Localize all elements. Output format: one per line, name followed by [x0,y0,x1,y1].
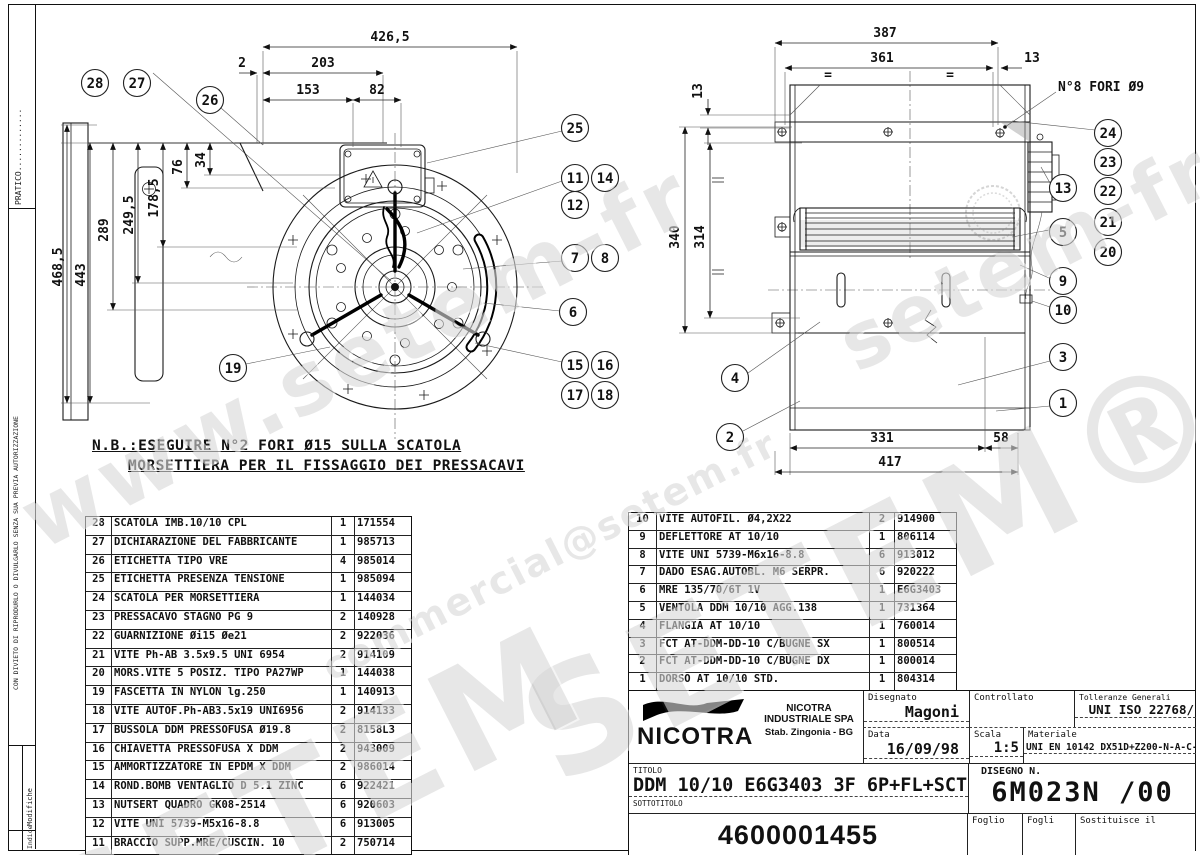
svg-text:18: 18 [597,388,614,404]
balloon: 8 [592,245,619,272]
bom-pos: 28 [86,517,111,535]
bom-qty: 6 [869,549,894,566]
bom-pos: 21 [86,649,111,667]
bom-desc: CHIAVETTA PRESSOFUSA X DDM [111,743,331,761]
dim-label: 153 [296,83,319,98]
bom-row: 22GUARNIZIONE Øi15 Øe212922036 [86,629,411,648]
bom-desc: VENTOLA DDM 10/10 AGG.138 [656,602,869,619]
break-line [925,310,937,343]
scala-value: 1:5 [970,740,1023,757]
svg-text:28: 28 [87,76,104,92]
dim-label: 76 [171,159,186,175]
bom-code: 140913 [354,686,411,704]
bom-desc: DADO ESAG.AUTOBL. M6 SERPR. [656,566,869,583]
balloon: 23 [1095,149,1122,176]
controllato-cell: Controllato [969,691,1074,727]
dimensions-left: 468,5 443 289 249,5 178,5 76 34 [51,125,340,403]
bom-code: 804314 [894,673,956,690]
bom-row: 21VITE Ph-AB 3.5x9.5 UNI 69542914109 [86,648,411,667]
balloon: 3 [1050,344,1077,371]
controllato-label: Controllato [970,691,1074,703]
bom-code: 140928 [354,611,411,629]
bom-code: 985713 [354,536,411,554]
bom-code: 922421 [354,780,411,798]
bom-code: 800514 [894,638,956,655]
tolleranze-label: Tolleranze Generali [1075,691,1196,702]
bom-row: 17BUSSOLA DDM PRESSOFUSA Ø19.828158L3 [86,723,411,742]
balloon: 22 [1095,178,1122,205]
tolleranze-value: UNI ISO 22768/ [1075,702,1196,718]
bom-table-left: 28SCATOLA IMB.10/10 CPL117155427DICHIARA… [85,516,412,855]
svg-text:11: 11 [567,171,584,187]
bom-desc: FCT AT-DDM-DD-10 C/BUGNE SX [656,638,869,655]
svg-text:25: 25 [567,121,584,137]
dim-label: 443 [74,263,89,286]
dim-label: 361 [870,51,894,66]
balloon: 21 [1095,209,1122,236]
bom-qty: 1 [869,638,894,655]
svg-text:10: 10 [1055,303,1072,319]
balloon: 28 [82,70,109,97]
bom-desc: VITE UNI 5739-M5x16-8.8 [111,818,331,836]
bom-pos: 24 [86,592,111,610]
svg-text:14: 14 [597,171,614,187]
bom-pos: 8 [629,549,656,566]
company-cell: NICOTRA NICOTRA INDUSTRIALE SPA Stab. Zi… [629,691,863,763]
bom-pos: 14 [86,780,111,798]
bom-pos: 15 [86,761,111,779]
bom-row: 23PRESSACAVO STAGNO PG 92140928 [86,610,411,629]
balloon: 9 [1050,268,1077,295]
note-line-1: N.B.:ESEGUIRE N°2 FORI Ø15 SULLA SCATOLA [92,438,525,454]
bom-qty: 1 [331,686,354,704]
bom-pos: 5 [629,602,656,619]
disegnato-value: Magoni [864,703,969,722]
bom-desc: ROND.BOMB VENTAGLIO D 5.1 ZINC [111,780,331,798]
bom-qty: 6 [869,566,894,583]
bom-qty: 2 [331,743,354,761]
bom-row: 6MRE 135/70/6T 1V1E6G3403 [629,583,956,601]
svg-text:26: 26 [202,93,219,109]
bom-desc: VITE AUTOF.Ph-AB3.5x19 UNI6956 [111,705,331,723]
bom-qty: 1 [331,536,354,554]
svg-text:5: 5 [1059,225,1067,241]
disegno-value: 6M023N /00 [969,777,1196,808]
dim-label: 426,5 [370,30,409,45]
bom-desc: ETICHETTA TIPO VRE [111,555,331,573]
balloon: 18 [592,382,619,409]
svg-text:16: 16 [597,358,614,374]
company-line1: NICOTRA INDUSTRIALE SPA [757,703,861,725]
bom-desc: AMMORTIZZATORE IN EPDM X DDM [111,761,331,779]
nicotra-logo-icon [639,697,749,723]
bom-desc: VITE Ph-AB 3.5x9.5 UNI 6954 [111,649,331,667]
bom-row: 24SCATOLA PER MORSETTIERA1144034 [86,591,411,610]
balloon: 17 [562,382,589,409]
bom-row: 14ROND.BOMB VENTAGLIO D 5.1 ZINC6922421 [86,779,411,798]
disegno-label: DISEGNO N. [969,764,1196,777]
bom-pos: 4 [629,620,656,637]
bom-code: 731364 [894,602,956,619]
sottotitolo-label: SOTTOTITOLO [629,797,968,808]
bom-qty: 1 [331,667,354,685]
bom-desc: DORSO AT 10/10 STD. [656,673,869,690]
bom-qty: 1 [869,655,894,672]
bom-desc: SCATOLA PER MORSETTIERA [111,592,331,610]
bom-table-right: 10VITE AUTOFIL. Ø4,2X2229149009DEFLETTOR… [628,512,957,691]
bom-desc: VITE UNI 5739-M6x16-8.8 [656,549,869,566]
dimensions-left: 13 340 314 [668,83,802,333]
svg-text:13: 13 [1055,181,1072,197]
bom-code: 800014 [894,655,956,672]
dim-label: 387 [873,26,896,41]
bom-qty: 6 [331,818,354,836]
bom-row: 9DEFLETTORE AT 10/101806114 [629,530,956,548]
bom-pos: 18 [86,705,111,723]
materiale-cell: Materiale UNI EN 10142 DX51D+Z200-N-A-C-… [1023,727,1196,763]
bom-qty: 1 [331,517,354,535]
tolleranze-cell: Tolleranze Generali UNI ISO 22768/ [1074,691,1196,727]
bom-qty: 2 [331,630,354,648]
drawing-sheet: PRATICO............. CON DIVIETO DI RIPR… [0,0,1200,855]
bom-row: 18VITE AUTOF.Ph-AB3.5x19 UNI69562914133 [86,704,411,723]
bom-pos: 2 [629,655,656,672]
bom-code: 914133 [354,705,411,723]
bom-row: 3FCT AT-DDM-DD-10 C/BUGNE SX1800514 [629,637,956,655]
bom-qty: 4 [331,555,354,573]
bom-qty: 1 [869,531,894,548]
bom-desc: BRACCIO SUPP.MRE/CUSCIN. 10 [111,837,331,855]
data-label: Data [864,728,969,740]
disegnato-cell: Disegnato Magoni [863,691,969,727]
dimensions-bottom: 331 58 417 [775,337,1018,475]
bom-row: 2FCT AT-DDM-DD-10 C/BUGNE DX1800014 [629,654,956,672]
svg-text:7: 7 [571,251,579,267]
svg-text:8: 8 [601,251,609,267]
bom-code: E6G3403 [894,584,956,601]
balloon: 27 [124,70,151,97]
dim-label: 417 [878,455,901,470]
bom-pos: 11 [86,837,111,855]
bom-row: 13NUTSERT QUADRO GK08-25146920603 [86,798,411,817]
bom-qty: 2 [331,705,354,723]
bom-desc: ETICHETTA PRESENZA TENSIONE [111,573,331,591]
bom-code: 750714 [354,837,411,855]
dim-label: 58 [993,431,1009,446]
bom-pos: 26 [86,555,111,573]
bom-row: 7DADO ESAG.AUTOBL. M6 SERPR.6920222 [629,565,956,583]
sostituisce-cell: Sostituisce il [1075,813,1196,855]
bom-qty: 1 [331,573,354,591]
dim-label: 13 [691,83,706,99]
svg-text:20: 20 [1100,245,1117,261]
bom-qty: 1 [331,592,354,610]
balloon: 16 [592,352,619,379]
dimensions-top: 387 361 = = 13 [775,26,1040,127]
bom-row: 11BRACCIO SUPP.MRE/CUSCIN. 102750714 [86,836,411,855]
scala-cell: Scala 1:5 [969,727,1023,763]
dim-label: 468,5 [51,247,66,286]
sostituisce-label: Sostituisce il [1076,814,1196,826]
svg-text:17: 17 [567,388,584,404]
bom-code: 806114 [894,531,956,548]
scala-label: Scala [970,728,1023,740]
svg-text:4: 4 [731,371,739,387]
codice-value: 4600001455 [629,814,967,851]
disegno-cell: DISEGNO N. 6M023N /00 [968,763,1196,813]
bom-qty: 2 [331,611,354,629]
bom-desc: DICHIARAZIONE DEL FABBRICANTE [111,536,331,554]
bom-row: 12VITE UNI 5739-M5x16-8.86913005 [86,817,411,836]
dim-label: 249,5 [122,195,137,234]
bom-code: 985014 [354,555,411,573]
svg-text:9: 9 [1059,274,1067,290]
bom-code: 914109 [354,649,411,667]
svg-text:19: 19 [225,361,242,377]
bom-desc: FASCETTA IN NYLON lg.250 [111,686,331,704]
bom-qty: 1 [869,602,894,619]
balloon: 24 [1095,120,1122,147]
dim-label: 203 [311,56,334,71]
bom-row: 26ETICHETTA TIPO VRE4985014 [86,554,411,573]
bom-pos: 1 [629,673,656,690]
dim-label: 82 [369,83,385,98]
bom-row: 4FLANGIA AT 10/101760014 [629,619,956,637]
balloon: 1 [1050,390,1077,417]
bom-pos: 13 [86,799,111,817]
bom-pos: 3 [629,638,656,655]
svg-text:22: 22 [1100,184,1117,200]
svg-text:1: 1 [1059,396,1067,412]
bom-desc: NUTSERT QUADRO GK08-2514 [111,799,331,817]
bom-pos: 22 [86,630,111,648]
bom-pos: 9 [629,531,656,548]
svg-text:24: 24 [1100,126,1117,142]
bom-row: 5VENTOLA DDM 10/10 AGG.1381731364 [629,601,956,619]
balloon: 4 [722,365,749,392]
bom-desc: MORS.VITE 5 POSIZ. TIPO PA27WP [111,667,331,685]
bom-pos: 17 [86,724,111,742]
bom-code: 986014 [354,761,411,779]
bom-desc: FCT AT-DDM-DD-10 C/BUGNE DX [656,655,869,672]
dim-label: 289 [97,218,112,241]
bom-code: 920222 [894,566,956,583]
bom-pos: 7 [629,566,656,583]
bom-code: 8158L3 [354,724,411,742]
bom-desc: SCATOLA IMB.10/10 CPL [111,517,331,535]
svg-text:6: 6 [569,305,577,321]
dim-label: 331 [870,431,894,446]
balloon: 19 [220,355,247,382]
data-value: 16/09/98 [864,740,969,759]
bom-pos: 6 [629,584,656,601]
bom-qty: 6 [331,799,354,817]
svg-text:15: 15 [567,358,584,374]
balloon: 13 [1050,175,1077,202]
bom-row: 25ETICHETTA PRESENZA TENSIONE1985094 [86,572,411,591]
margin-practice-note: PRATICO............. [14,109,23,205]
titolo-label: TITOLO [629,764,968,775]
foglio-label: Foglio [968,814,1022,826]
bom-desc: GUARNIZIONE Øi15 Øe21 [111,630,331,648]
bom-desc: BUSSOLA DDM PRESSOFUSA Ø19.8 [111,724,331,742]
svg-text:27: 27 [129,76,146,92]
bom-row: 1DORSO AT 10/10 STD.1804314 [629,672,956,690]
bom-row: 10VITE AUTOFIL. Ø4,2X222914900 [629,513,956,530]
bom-code: 920603 [354,799,411,817]
dim-label: 340 [668,225,683,249]
svg-text:21: 21 [1100,215,1117,231]
bom-row: 15AMMORTIZZATORE IN EPDM X DDM2986014 [86,760,411,779]
balloon: 2 [717,424,744,451]
dim-label: 13 [1024,51,1040,66]
bom-code: 985094 [354,573,411,591]
disegnato-label: Disegnato [864,691,969,703]
bom-row: 19FASCETTA IN NYLON lg.2501140913 [86,685,411,704]
margin-line [8,208,35,209]
bom-qty: 1 [869,673,894,690]
dim-label: 314 [693,225,708,249]
margin-indice-label: Indice [26,826,34,849]
data-cell: Data 16/09/98 [863,727,969,763]
materiale-value: UNI EN 10142 DX51D+Z200-N-A-C-O [1024,740,1196,754]
balloon: 12 [562,192,589,219]
note-line-2: MORSETTIERA PER IL FISSAGGIO DEI PRESSAC… [128,458,525,474]
balloon: 26 [197,87,224,114]
svg-text:23: 23 [1100,155,1117,171]
bom-qty: 2 [331,761,354,779]
bom-qty: 2 [869,513,894,530]
bom-row: 27DICHIARAZIONE DEL FABBRICANTE1985713 [86,535,411,554]
balloon: 10 [1050,297,1077,324]
svg-text:2: 2 [726,430,734,446]
bom-desc: VITE AUTOFIL. Ø4,2X22 [656,513,869,530]
bom-code: 760014 [894,620,956,637]
bom-qty: 1 [869,620,894,637]
bom-desc: PRESSACAVO STAGNO PG 9 [111,611,331,629]
dim-label: 34 [194,152,209,168]
materiale-label: Materiale [1024,728,1196,740]
side-view-drawing: 426,5 2 203 153 82 468,5 443 289 [35,15,675,505]
bom-desc: MRE 135/70/6T 1V [656,584,869,601]
bom-pos: 23 [86,611,111,629]
bom-qty: 6 [331,780,354,798]
support-arms [300,180,490,346]
balloon: 5 [1050,219,1077,246]
svg-text:12: 12 [567,198,584,214]
bom-code: 144034 [354,592,411,610]
bom-row: 8VITE UNI 5739-M6x16-8.86913012 [629,548,956,566]
fogli-label: Fogli [1023,814,1075,826]
bom-code: 913012 [894,549,956,566]
bom-desc: FLANGIA AT 10/10 [656,620,869,637]
bom-desc: DEFLETTORE AT 10/10 [656,531,869,548]
bom-row: 28SCATOLA IMB.10/10 CPL1171554 [86,517,411,535]
titolo-value: DDM 10/10 E6G3403 3F 6P+FL+SCT [629,775,968,797]
bom-code: 914900 [894,513,956,530]
foglio-cell: Foglio [967,813,1022,855]
bom-pos: 25 [86,573,111,591]
bom-code: 144038 [354,667,411,685]
bom-pos: 19 [86,686,111,704]
balloon: 6 [560,299,587,326]
bom-qty: 2 [331,724,354,742]
drilling-note: N.B.:ESEGUIRE N°2 FORI Ø15 SULLA SCATOLA… [92,438,525,474]
front-view-drawing: 387 361 = = 13 N°8 FORI Ø9 13 340 314 [660,15,1200,495]
title-block: NICOTRA NICOTRA INDUSTRIALE SPA Stab. Zi… [628,690,1195,855]
margin-line [22,745,23,851]
dim-label: 178,5 [147,178,162,217]
balloon: 7 [562,245,589,272]
company-line2: Stab. Zingonia - BG [757,727,861,738]
bom-pos: 16 [86,743,111,761]
bom-row: 20MORS.VITE 5 POSIZ. TIPO PA27WP1144038 [86,666,411,685]
bom-pos: 12 [86,818,111,836]
bom-pos: 20 [86,667,111,685]
bom-pos: 10 [629,513,656,530]
balloon: 14 [592,165,619,192]
bom-code: 922036 [354,630,411,648]
titolo-cell: TITOLO DDM 10/10 E6G3403 3F 6P+FL+SCT SO… [629,763,968,813]
dim-label: 2 [238,56,246,71]
equality-mark: = [946,68,954,83]
balloon: 15 [562,352,589,379]
bom-qty: 2 [331,649,354,667]
equality-mark: = [824,68,832,83]
margin-modifiche-label: Modifiche [26,788,34,826]
balloon: 25 [562,115,589,142]
svg-text:3: 3 [1059,350,1067,366]
balloon: 20 [1095,239,1122,266]
margin-confidential-note: CON DIVIETO DI RIPRODURLO O DIVULGARLO S… [12,416,20,690]
balloon: 11 [562,165,589,192]
fogli-cell: Fogli [1022,813,1075,855]
bom-code: 943009 [354,743,411,761]
company-name: NICOTRA [637,723,753,751]
holes-label: N°8 FORI Ø9 [1058,80,1144,95]
bom-code: 171554 [354,517,411,535]
bom-qty: 2 [331,837,354,855]
bom-qty: 1 [869,584,894,601]
bom-pos: 27 [86,536,111,554]
codice-cell: 4600001455 [629,813,967,855]
corner-gusset [1000,122,1030,142]
bom-row: 16CHIAVETTA PRESSOFUSA X DDM2943009 [86,742,411,761]
bom-code: 913005 [354,818,411,836]
